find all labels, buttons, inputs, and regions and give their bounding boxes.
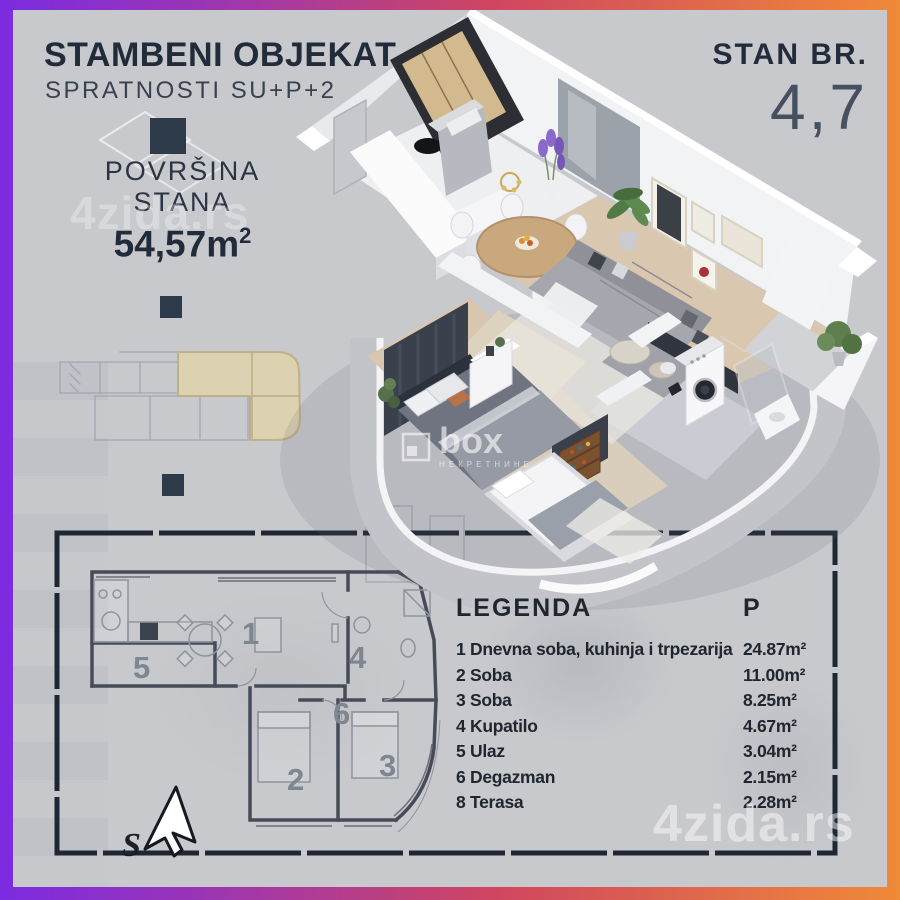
- room-number-3: 3: [379, 748, 396, 783]
- area-label-line1: POVRŠINA: [85, 156, 280, 187]
- plan-windows: [96, 577, 440, 832]
- room-number-4: 4: [349, 640, 367, 675]
- legend: LEGENDA P 1 Dnevna soba, kuhinja i trpez…: [456, 594, 846, 818]
- floor-plan-2d: 1 2 3 4 5 6 S: [92, 572, 440, 864]
- unit-label: STAN BR.: [613, 38, 868, 72]
- legend-row-area: 2.15m²: [743, 767, 797, 788]
- page-title: STAMBENI OBJEKAT: [44, 36, 396, 75]
- legend-row: 2 Soba11.00m²: [456, 665, 846, 691]
- room-number-6: 6: [333, 696, 350, 731]
- unit-block: STAN BR. 4,7: [613, 38, 868, 138]
- area-value: 54,57m2: [85, 223, 280, 265]
- area-block: POVRŠINA STANA 54,57m2: [85, 156, 280, 265]
- site-plan-mini: [60, 352, 300, 440]
- legend-row-area: 24.87m²: [743, 639, 806, 660]
- legend-row: 5 Ulaz3.04m²: [456, 741, 846, 767]
- unit-number: 4,7: [613, 76, 868, 138]
- cooktop: [414, 138, 442, 154]
- legend-row: 8 Terasa2.28m²: [456, 792, 846, 818]
- area-label-line2: STANA: [85, 187, 280, 218]
- legend-row-name: 8 Terasa: [456, 792, 523, 812]
- legend-row-name: 5 Ulaz: [456, 741, 505, 761]
- legend-title: LEGENDA: [456, 594, 592, 622]
- flyer-canvas: 1 2 3 4 5 6 S: [0, 0, 900, 900]
- logo-dark-square: [150, 118, 186, 154]
- legend-rows: 1 Dnevna soba, kuhinja i trpezarija24.87…: [456, 639, 846, 818]
- room-number-5: 5: [133, 650, 150, 685]
- accent-square-lower: [162, 474, 184, 496]
- legend-row-name: 4 Kupatilo: [456, 716, 538, 736]
- legend-row: 4 Kupatilo4.67m²: [456, 716, 846, 742]
- legend-row-name: 3 Soba: [456, 690, 512, 710]
- legend-row: 3 Soba8.25m²: [456, 690, 846, 716]
- area-value-sup: 2: [239, 223, 251, 248]
- room-number-2: 2: [287, 762, 304, 797]
- accent-square-upper: [160, 296, 182, 318]
- legend-row-area: 11.00m²: [743, 665, 805, 686]
- legend-area-column: P: [743, 594, 762, 623]
- legend-header: LEGENDA P: [456, 594, 846, 623]
- flyer-inner-panel: 1 2 3 4 5 6 S: [13, 10, 887, 887]
- page-subtitle: SPRATNOSTI SU+P+2: [45, 77, 336, 105]
- toilet: [660, 362, 676, 374]
- legend-row-area: 8.25m²: [743, 690, 797, 711]
- room-number-1: 1: [242, 616, 259, 651]
- area-value-number: 54,57m: [114, 223, 240, 264]
- legend-row: 6 Degazman2.15m²: [456, 767, 846, 793]
- legend-row-name: 2 Soba: [456, 665, 512, 685]
- legend-row-area: 3.04m²: [743, 741, 797, 762]
- compass-label: S: [122, 827, 141, 864]
- legend-row-area: 4.67m²: [743, 716, 797, 737]
- legend-row: 1 Dnevna soba, kuhinja i trpezarija24.87…: [456, 639, 846, 665]
- legend-row-name: 1 Dnevna soba, kuhinja i trpezarija: [456, 639, 732, 659]
- legend-row-area: 2.28m²: [743, 792, 797, 813]
- legend-row-name: 6 Degazman: [456, 767, 555, 787]
